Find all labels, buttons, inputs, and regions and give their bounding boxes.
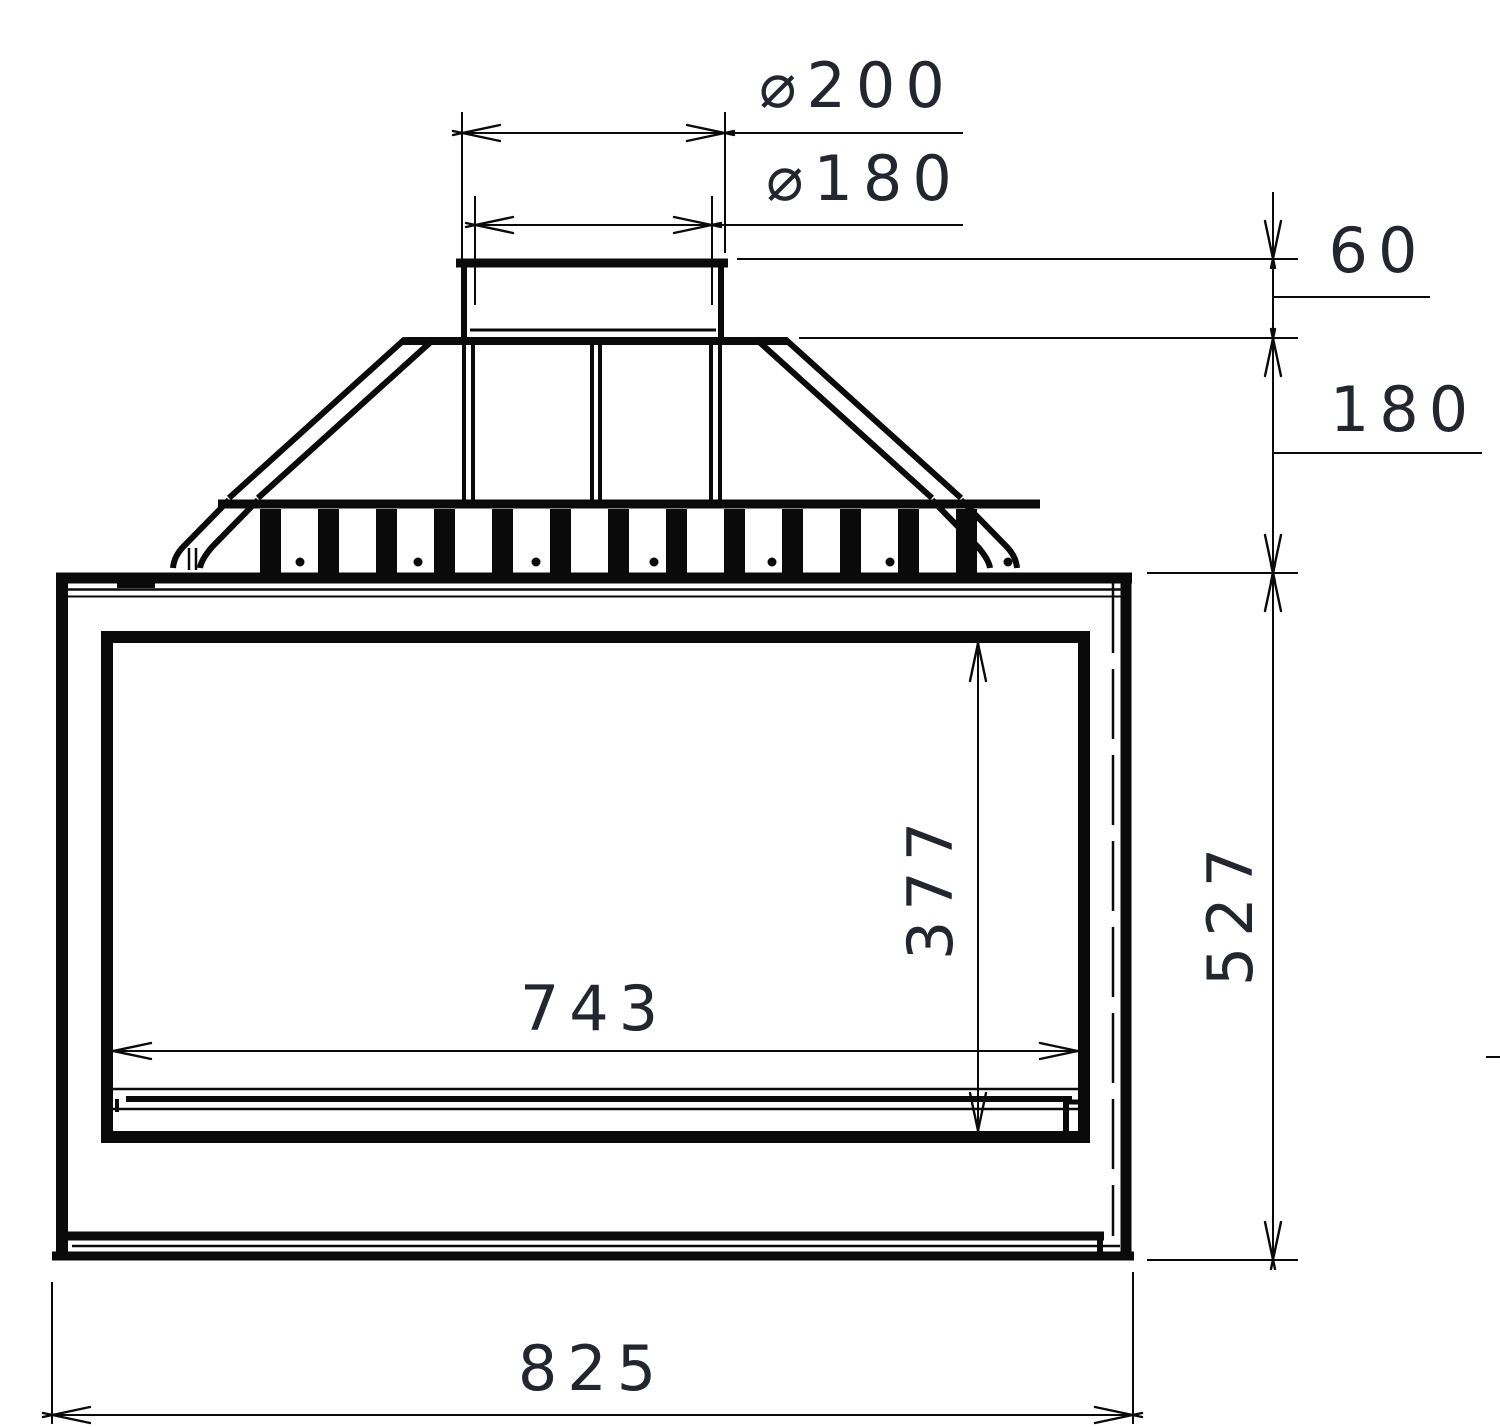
dim-glass-height: 377 [894, 634, 986, 1140]
flue-collar [456, 259, 728, 341]
grille-slats [260, 509, 977, 573]
hood-right-slope [785, 339, 961, 498]
convection-grille [218, 504, 1040, 573]
dim-label-hood-height: 180 [1330, 373, 1478, 446]
dim-label-glass-width: 743 [520, 972, 668, 1045]
dim-label-flue-inner: ⌀180 [766, 142, 962, 215]
dim-label-flue-outer: ⌀200 [759, 49, 955, 122]
dim-body-width: 825 [43, 1272, 1142, 1424]
dim-label-glass-height: 377 [894, 812, 967, 960]
drawing-sheet: ⌀200 ⌀180 60 1 [0, 0, 1500, 1427]
dim-label-collar-height: 60 [1329, 214, 1428, 287]
dim-glass-width: 743 [104, 972, 1087, 1059]
dim-label-body-height: 527 [1194, 838, 1267, 986]
dimension-annotations: ⌀200 ⌀180 60 1 [43, 49, 1500, 1424]
dim-flue-inner-diameter: ⌀180 [466, 142, 963, 305]
dim-label-body-width: 825 [518, 1332, 666, 1405]
dim-right-chain: 60 180 527 [737, 192, 1482, 1269]
smoke-hood [173, 339, 1017, 570]
technical-drawing-canvas: ⌀200 ⌀180 60 1 [0, 0, 1500, 1427]
hood-left-slope [229, 339, 405, 498]
